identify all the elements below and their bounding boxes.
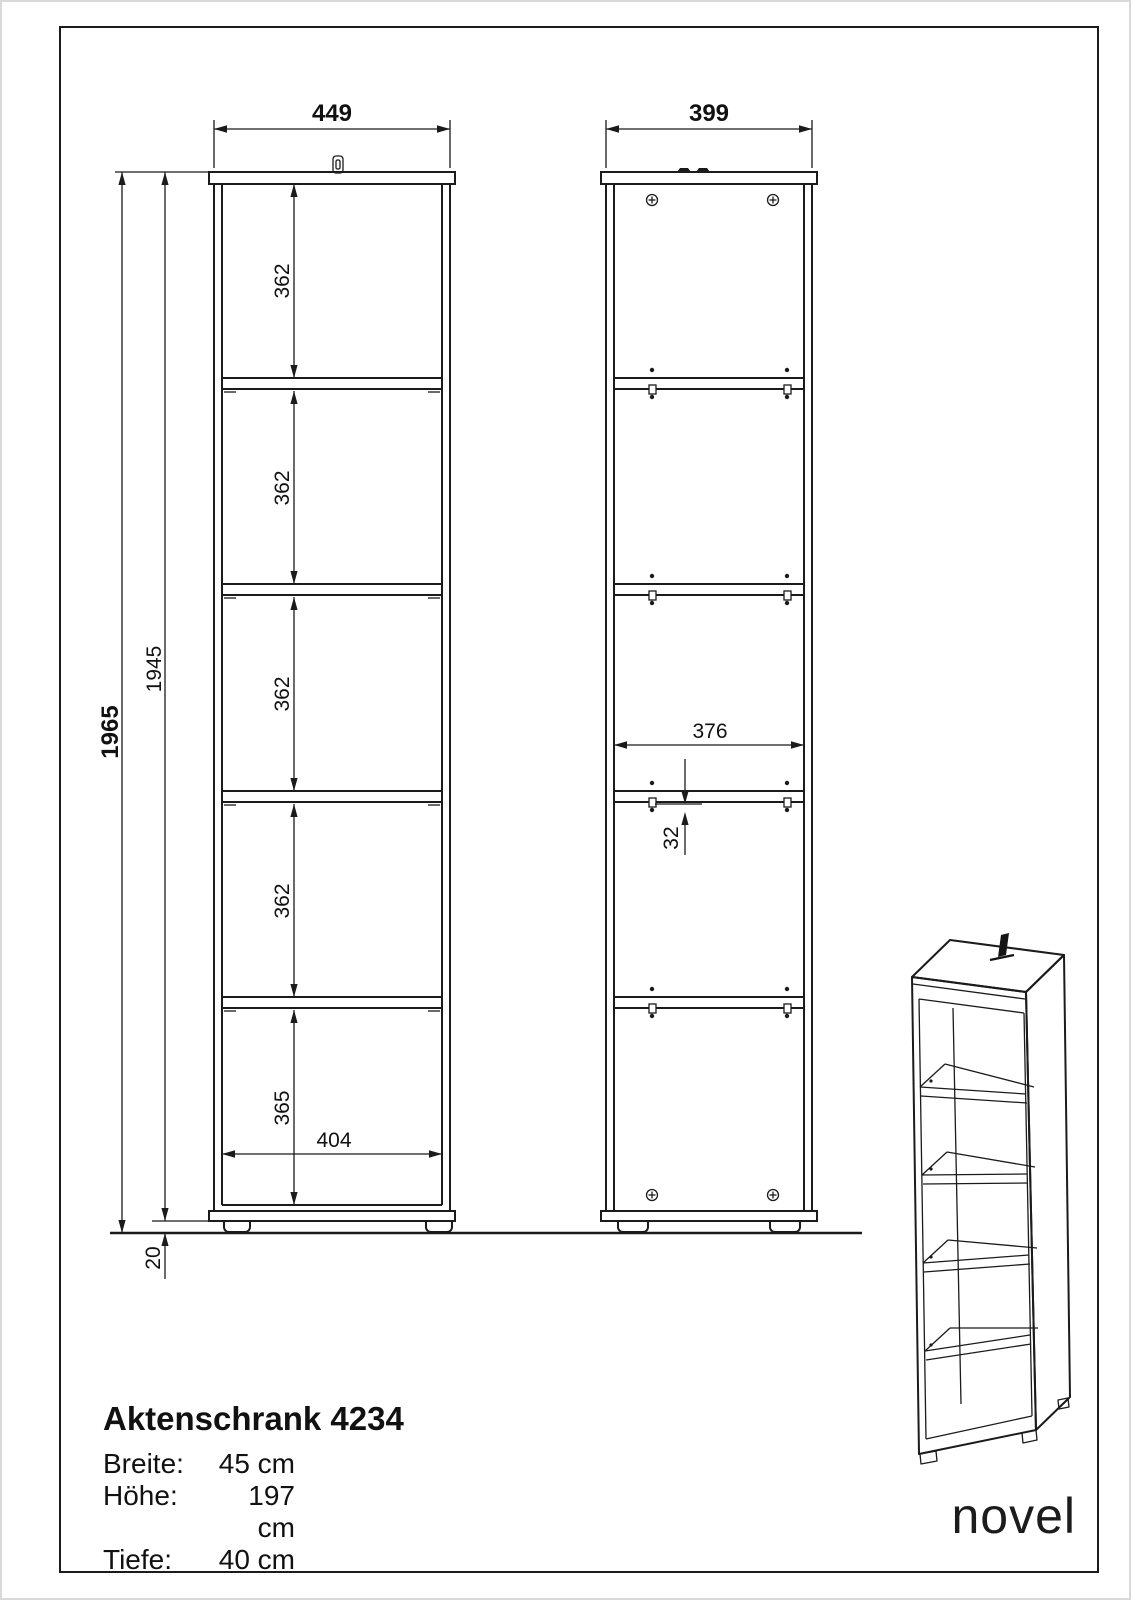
perspective-view: [912, 933, 1070, 1464]
dim-body-height: 1945: [143, 646, 166, 693]
svg-text:362: 362: [271, 676, 294, 711]
front-feet: [224, 1221, 452, 1232]
dim-back-width: 399: [689, 100, 729, 127]
spec-value: 45 cm: [207, 1448, 295, 1480]
back-shelves: [614, 368, 804, 1018]
dim-hole-pitch: 32: [660, 826, 683, 849]
perspective-shelves: [920, 1064, 1038, 1360]
drawing-sheet: 449 399 1965 1945 20: [0, 0, 1131, 1600]
spec-row-hoehe: Höhe: 197 cm: [103, 1480, 523, 1544]
screw-icon: [647, 195, 779, 206]
spec-row-breite: Breite: 45 cm: [103, 1448, 523, 1480]
brand-logo: novel: [951, 1487, 1076, 1545]
perspective-feet: [920, 1398, 1069, 1464]
spec-label: Höhe:: [103, 1480, 207, 1544]
back-view: [601, 168, 817, 1232]
dim-compartment-4: 362: [271, 804, 298, 997]
dim-foot-height: 20: [142, 1246, 165, 1269]
svg-text:362: 362: [271, 883, 294, 918]
technical-drawing: 449 399 1965 1945 20: [2, 2, 1131, 1600]
dimensions: 449 399 1965 1945 20: [97, 100, 812, 1279]
svg-text:365: 365: [271, 1090, 294, 1125]
spec-value: 40 cm: [207, 1544, 295, 1576]
dim-total-height: 1965: [97, 705, 124, 758]
spec-label: Breite:: [103, 1448, 207, 1480]
dim-back-inner-width: 376: [692, 720, 727, 743]
title-block: Aktenschrank 4234 Breite: 45 cm Höhe: 19…: [103, 1400, 523, 1576]
front-view: [209, 156, 455, 1232]
dim-front-width: 449: [312, 100, 352, 127]
dim-compartment-1: 362: [271, 184, 298, 378]
dim-compartment-2: 362: [271, 391, 298, 584]
product-title: Aktenschrank 4234: [103, 1400, 523, 1438]
svg-text:362: 362: [271, 470, 294, 505]
front-shelves: [222, 378, 442, 1011]
spec-label: Tiefe:: [103, 1544, 207, 1576]
dim-compartment-3: 362: [271, 597, 298, 791]
dim-front-inner-width: 404: [316, 1129, 351, 1152]
svg-text:362: 362: [271, 263, 294, 298]
screw-icon: [647, 1190, 779, 1201]
back-feet: [618, 1221, 800, 1232]
wall-bracket-front-icon: [333, 156, 343, 173]
spec-row-tiefe: Tiefe: 40 cm: [103, 1544, 523, 1576]
spec-value: 197 cm: [207, 1480, 295, 1544]
dim-compartment-5: 365: [271, 1010, 298, 1205]
